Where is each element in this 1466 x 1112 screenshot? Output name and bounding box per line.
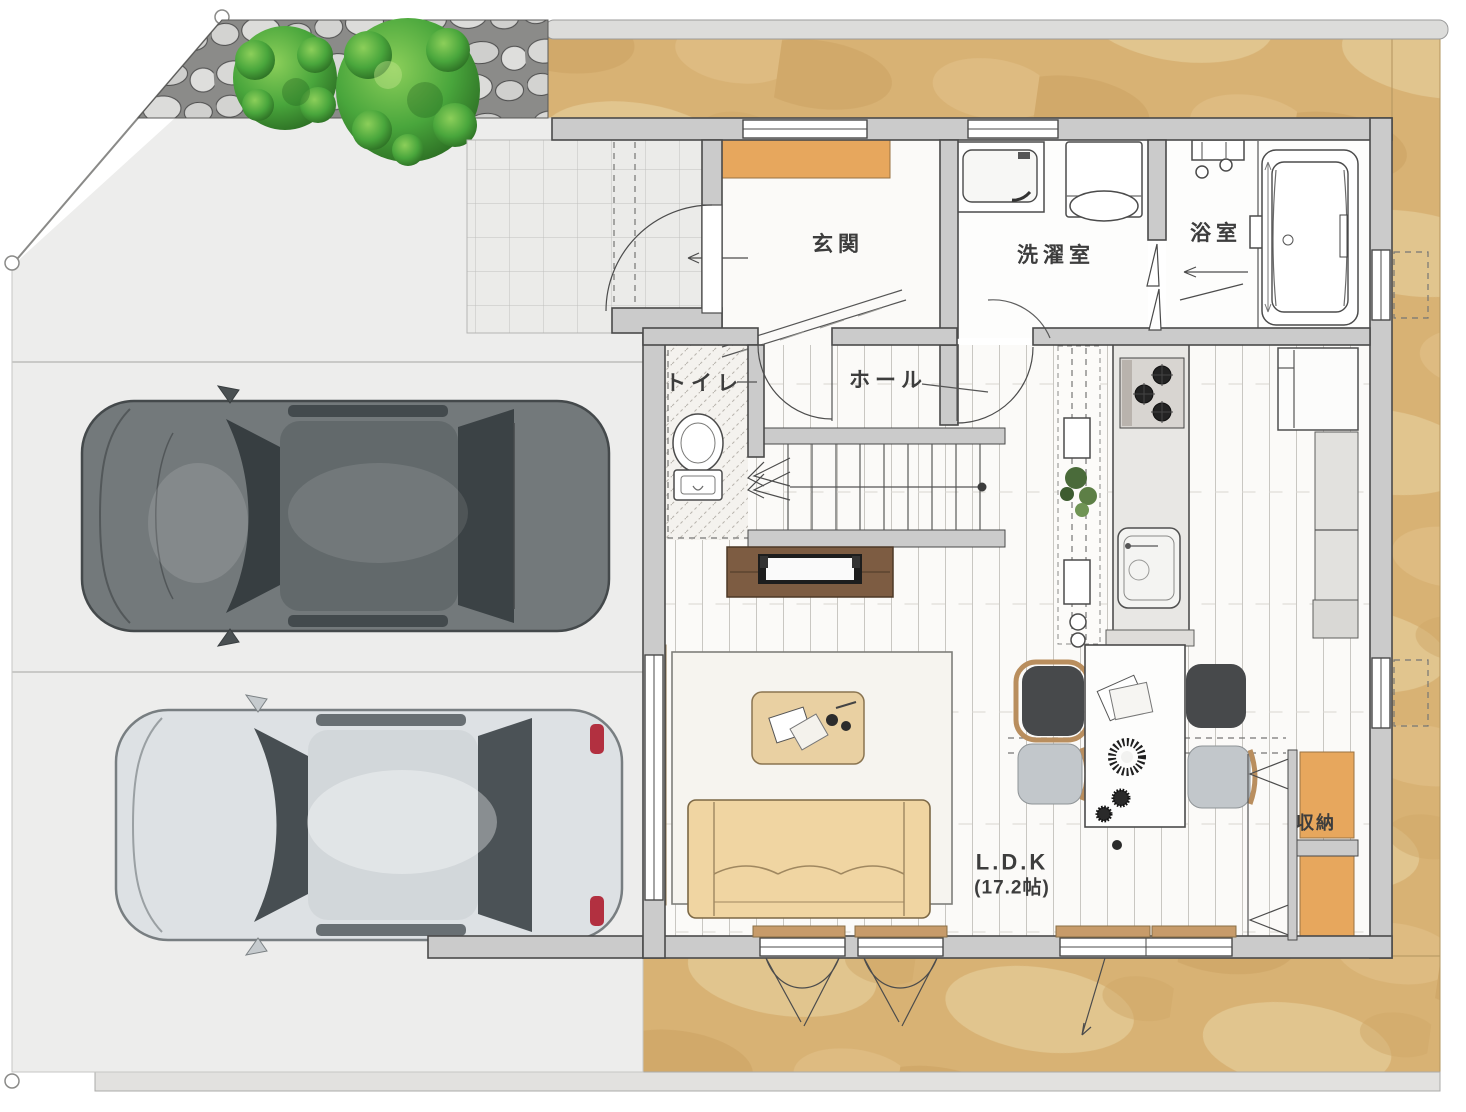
- car-dark: [82, 386, 609, 646]
- boundary-marker: [5, 256, 19, 270]
- window-living-west: [645, 655, 663, 900]
- kitchen-sink: [1118, 528, 1180, 608]
- car-silver: [116, 695, 622, 955]
- tree: [336, 18, 480, 166]
- label-bath: 浴室: [1190, 217, 1242, 247]
- sofa: [688, 800, 930, 918]
- tree: [233, 26, 337, 130]
- label-laundry: 洗濯室: [1017, 239, 1095, 269]
- washing-machine: [1066, 142, 1142, 221]
- label-ldk-name: L.D.K: [974, 848, 1050, 876]
- dining-chair-light: [1188, 746, 1255, 808]
- entry-porch: [467, 140, 702, 333]
- label-ldk-size: (17.2帖): [974, 876, 1050, 900]
- window-laundry-north: [968, 120, 1058, 138]
- taillight: [590, 724, 604, 754]
- shoe-cabinet: [722, 140, 890, 178]
- label-genkan: 玄関: [812, 228, 864, 258]
- label-hall: ホール: [849, 364, 927, 394]
- label-storage: 収納: [1296, 809, 1336, 835]
- label-toilet: トイレ: [665, 367, 743, 397]
- stove: [1120, 358, 1184, 428]
- dining-chair-dark: [1186, 664, 1246, 728]
- coffee-table: [752, 692, 864, 764]
- bathtub: [1262, 150, 1358, 325]
- dining-chair-dark: [1016, 662, 1088, 740]
- laundry-vanity: [956, 142, 1044, 212]
- refrigerator: [1278, 348, 1358, 430]
- window-genkan-north: [743, 120, 867, 138]
- boundary-marker: [5, 1074, 19, 1088]
- floor-plan-canvas: [0, 0, 1466, 1112]
- label-ldk: L.D.K (17.2帖): [974, 848, 1050, 899]
- floor-plan-page: 玄関 洗濯室 浴室 トイレ ホール 収納 L.D.K (17.2帖): [0, 0, 1466, 1112]
- tv-board: [727, 547, 893, 597]
- taillight: [590, 896, 604, 926]
- toilet-fixture: [673, 414, 723, 500]
- dining-chair-light: [1018, 744, 1087, 804]
- dining-table: [1085, 645, 1185, 850]
